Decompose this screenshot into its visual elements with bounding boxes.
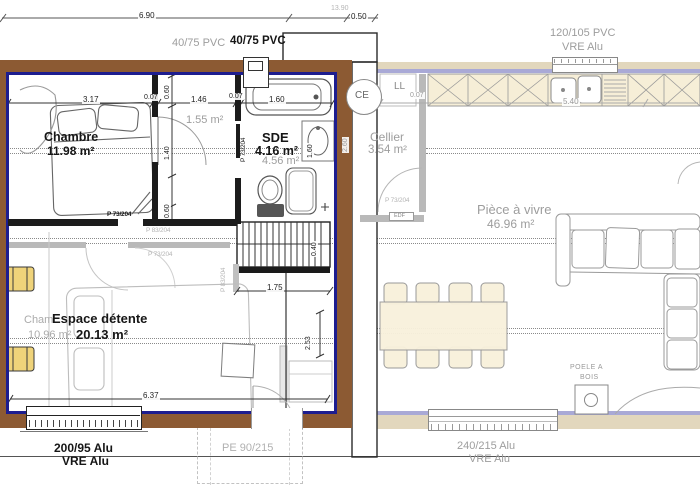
wall-middle-a — [8, 219, 118, 226]
wall-middle-b — [143, 219, 237, 226]
dim-total-width: 6.90 — [138, 12, 156, 20]
window-bl-label-2: VRE Alu — [62, 455, 109, 467]
dim-overall-width: 13.90 — [331, 5, 349, 12]
dim-offset: 0.50 — [350, 13, 368, 21]
dim-bath: 1.60 — [268, 96, 286, 104]
stove-label-1: POELE A — [570, 364, 603, 371]
door-label-stairs: P 83/204 — [221, 268, 228, 292]
room-chambre-area: 11.98 m² — [47, 145, 94, 157]
door-label-old-2: P 73/204 — [148, 252, 172, 259]
floor-plan: 6.90 13.90 0.50 40/75 PVC 40/75 PVC 120/… — [0, 0, 700, 500]
room-espace-old-area: 10.96 m² — [28, 330, 71, 341]
door-label-sde: P 73/204 — [241, 138, 248, 162]
outer-wall-right — [337, 60, 352, 428]
room-espace-name: Espace détente — [52, 312, 147, 325]
flue-label-old: 40/75 PVC — [172, 38, 225, 49]
dim-duct: 2.60 — [342, 137, 349, 153]
room-espace-area: 20.13 m² — [76, 328, 128, 341]
room-living-area: 46.96 m² — [487, 218, 534, 230]
dining-set — [380, 283, 507, 368]
window-top-label-1: 120/105 PVC — [550, 28, 615, 39]
room-sde-name: SDE — [262, 131, 289, 144]
dim-wall-a: 0.07 — [143, 94, 159, 101]
flue-box — [243, 57, 269, 88]
door-label-old-1: P 83/204 — [146, 228, 170, 235]
dim-bed-wall: 3.17 — [82, 96, 100, 104]
room-sde-old-area: 4.56 m² — [262, 156, 299, 167]
wall-chambre-right-b — [152, 162, 158, 224]
room-living-name: Pièce à vivre — [477, 203, 551, 216]
dim-v-mid: 1.40 — [164, 145, 171, 161]
dim-cellier-wall: 0.07 — [409, 92, 425, 99]
wood-stove — [575, 385, 608, 414]
room-closet-old-area: 1.55 m² — [186, 115, 223, 126]
dim-v-bot: 0.60 — [164, 203, 171, 219]
sofa-sketch — [556, 214, 700, 370]
room-espace-old-name: Cham — [24, 315, 53, 326]
outer-wall-top — [0, 60, 352, 72]
dim-inner-width: 6.37 — [142, 392, 160, 400]
entry-door-gap — [251, 408, 303, 429]
hearth-arc — [615, 387, 700, 414]
dim-stair-width: 1.75 — [266, 284, 284, 292]
door-label-cellier: P 73/204 — [385, 198, 409, 205]
electric-panel-label: EDF — [394, 214, 405, 220]
door-label-espace-top: P 73/204 — [107, 212, 131, 219]
washing-machine-label: LL — [394, 82, 405, 92]
lamp-arc — [678, 162, 700, 184]
dim-v-top: 0.60 — [164, 84, 171, 100]
water-heater-label: CE — [355, 91, 369, 101]
flue-label-new: 40/75 PVC — [230, 36, 286, 48]
window-br-label-1: 240/215 Alu — [457, 441, 515, 452]
inner-frame — [6, 72, 337, 414]
window-top-right — [552, 57, 618, 73]
window-br-label-2: VRE Alu — [469, 454, 510, 465]
room-cellier-name: Cellier — [370, 131, 404, 143]
dim-stair-depth: 0.40 — [311, 241, 318, 257]
stove-label-2: BOIS — [580, 374, 599, 381]
dim-kitchen-run: 5.40 — [562, 98, 580, 106]
room-cellier-area: 3.54 m² — [368, 145, 407, 157]
dim-espace-depth: 2.53 — [305, 335, 312, 351]
entry-door-label: PE 90/215 — [222, 443, 273, 454]
window-sill-line — [20, 431, 148, 432]
wall-sde-left-b — [235, 178, 241, 224]
window-bottom-right — [428, 409, 558, 431]
room-chambre-name: Chambre — [44, 131, 98, 144]
dim-sde-width: 1.60 — [307, 143, 314, 159]
window-top-label-2: VRE Alu — [562, 42, 603, 53]
dim-wall-b: 0.07 — [228, 93, 244, 100]
window-bl-label-1: 200/95 Alu — [54, 442, 113, 454]
dim-hall: 1.46 — [190, 96, 208, 104]
window-bottom-left — [26, 406, 142, 430]
